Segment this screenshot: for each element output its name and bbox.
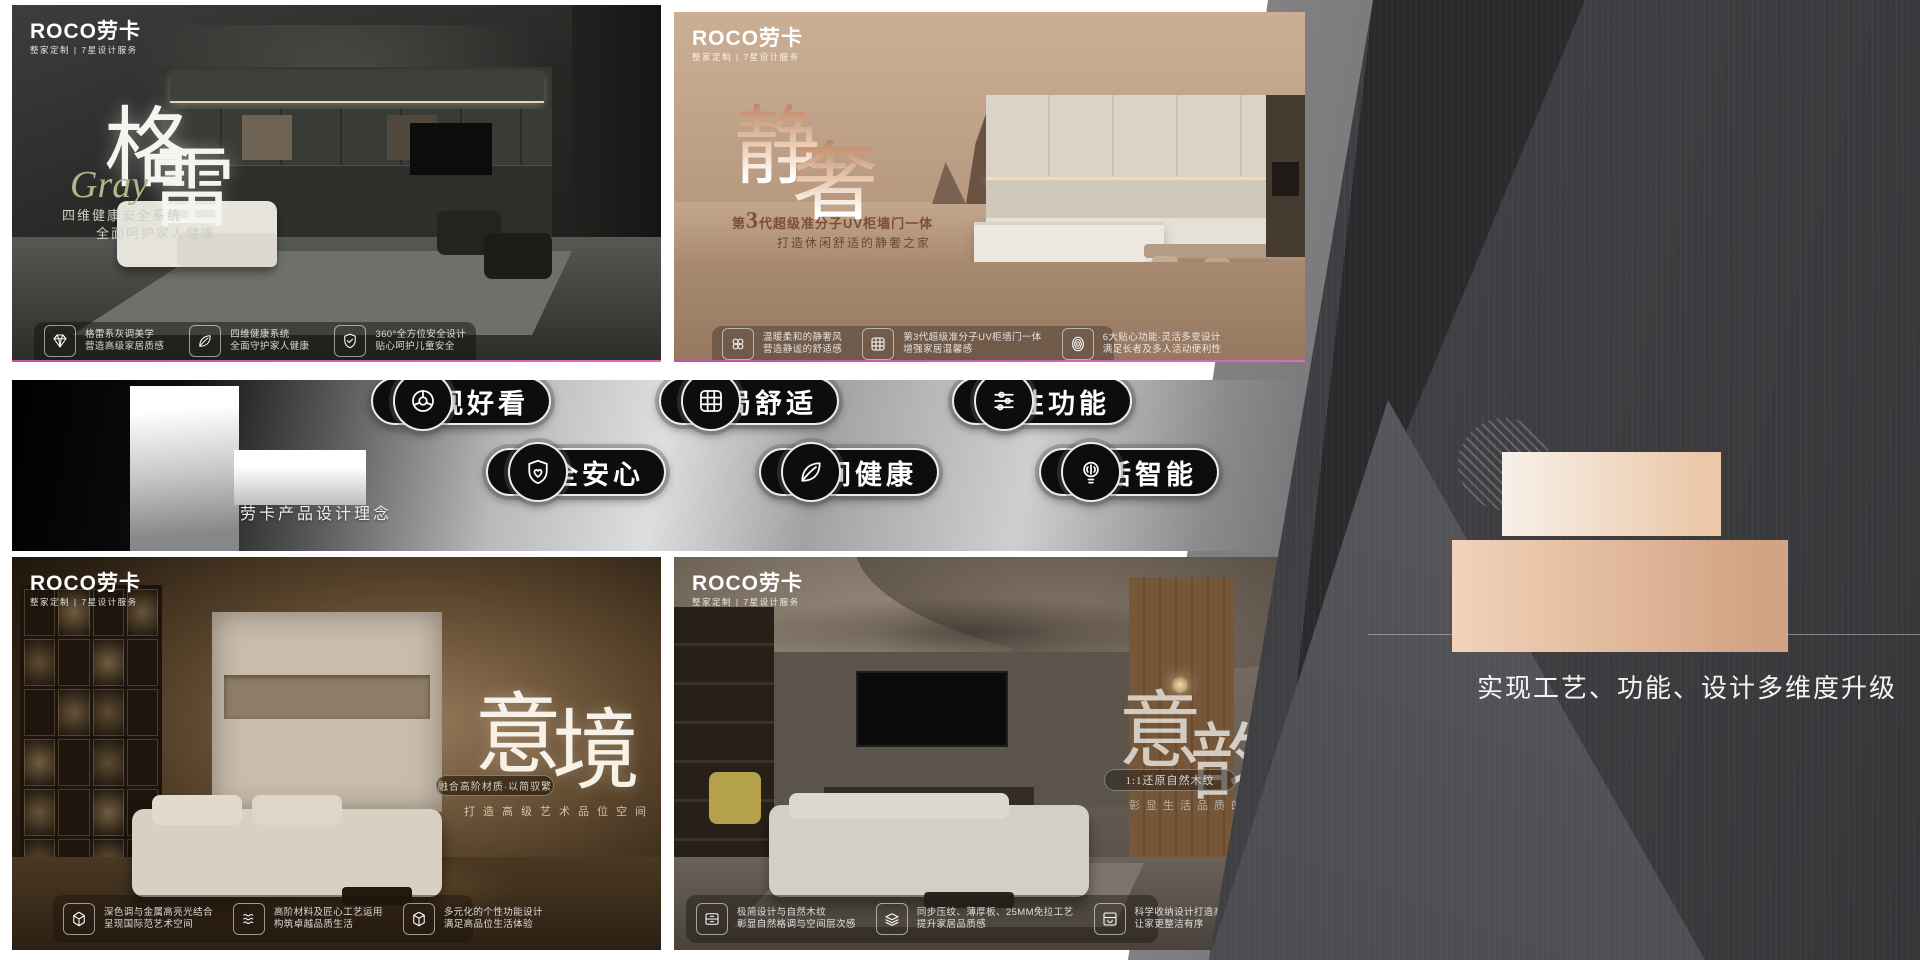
roco-logo: ROCO劳卡 整家定制 | 7星设计服务 — [30, 573, 141, 607]
scene-backsplash — [986, 180, 1305, 218]
feature-line2: 满足长者及多人活动便利性 — [1103, 344, 1222, 357]
feature-line1: 同步压纹、薄厚板、25MM免拉工艺 — [917, 907, 1074, 920]
feature-text: 温暖柔和的静奢风 营造静谧的舒适感 — [763, 332, 842, 357]
gray-subtitle-1: 四维健康安全系统 — [62, 205, 182, 224]
feature-icon-box — [403, 903, 435, 935]
feature-line2: 营造高级家居质感 — [85, 341, 164, 354]
feature-item: 高阶材料及匠心工艺运用 构筑卓越品质生活 — [223, 903, 393, 935]
sliders-icon — [989, 386, 1019, 416]
panel-headline-series: 4大系列 — [1502, 452, 1721, 536]
feature-text: 极简设计与自然木纹 彰显自然格调与空间层次感 — [737, 907, 856, 932]
roco-logo-tagline: 整家定制 | 7星设计服务 — [692, 598, 803, 607]
scene-tv — [856, 671, 1008, 747]
subtitle-prefix: 第 — [732, 213, 745, 232]
feature-line1: 极简设计与自然木纹 — [737, 907, 856, 920]
feature-item: 6大贴心功能·灵活多变设计 满足长者及多人活动便利性 — [1052, 328, 1232, 360]
scene-sofa-cushion-1 — [152, 795, 242, 825]
shelf-cell — [58, 639, 89, 686]
feature-text: 深色调与金属高亮光结合 呈现国际范艺术空间 — [104, 907, 213, 932]
feature-line2: 提升家居品质感 — [917, 919, 1074, 932]
poster-gray-series: ROCO劳卡 整家定制 | 7星设计服务 格 雷 Gray 四维健康安全系统 全… — [12, 5, 661, 362]
aperture-icon — [408, 386, 438, 416]
standards-caption: 劳卡产品设计理念 — [240, 500, 392, 524]
feature-line2: 贴心呵护儿童安全 — [375, 341, 466, 354]
standards-heading: 大标准 — [234, 450, 366, 505]
feature-icon-box — [334, 325, 366, 357]
yijing-badge: 融合高阶材质·以简驭繁 — [436, 775, 554, 796]
feature-item: 极简设计与自然木纹 彰显自然格调与空间层次感 — [686, 903, 866, 935]
cabinet-grid-icon — [869, 335, 887, 353]
roco-logo-text: ROCO劳卡 — [692, 28, 803, 49]
poster-jingshe-series: ROCO劳卡 整家定制 | 7星设计服务 静 奢 第 3 代超级准分子UV柜墙门… — [674, 12, 1305, 362]
shelf-cell-lit — [24, 789, 55, 836]
leaf-icon — [796, 457, 826, 487]
feature-line1: 深色调与金属高亮光结合 — [104, 907, 213, 920]
feature-text: 360°全方位安全设计 贴心呵护儿童安全 — [375, 329, 466, 354]
scene-upper-cabinets — [986, 95, 1305, 179]
roco-logo: ROCO劳卡 整家定制 | 7星设计服务 — [692, 28, 803, 62]
promo-sheet: ROCO劳卡 整家定制 | 7星设计服务 格 雷 Gray 四维健康安全系统 全… — [0, 0, 1920, 960]
feature-line2: 呈现国际范艺术空间 — [104, 919, 213, 932]
feature-icon-box — [189, 325, 221, 357]
waves-icon — [240, 910, 258, 928]
feature-item: 360°全方位安全设计 贴心呵护儿童安全 — [324, 325, 476, 357]
layers-icon — [883, 910, 901, 928]
feature-line1: 四维健康系统 — [230, 329, 309, 342]
shelf-cell-lit — [93, 689, 124, 736]
roco-logo-text: ROCO劳卡 — [30, 21, 141, 42]
shelf-cell — [24, 689, 55, 736]
yijing-title-char2: 境 — [552, 709, 640, 797]
roco-logo-tagline: 整家定制 | 7星设计服务 — [30, 46, 141, 55]
scene-art-panel-1 — [242, 115, 292, 160]
feature-icon-box — [233, 903, 265, 935]
leaf-icon — [196, 332, 214, 350]
scene-bookshelf — [674, 607, 774, 867]
yiyun-badge: 1:1还原自然木纹 — [1104, 769, 1236, 791]
shelf-cell-lit — [58, 689, 89, 736]
magenta-accent-line — [12, 360, 661, 362]
badge-icon-circle — [1061, 442, 1121, 502]
grid-icon — [696, 386, 726, 416]
feature-line2: 增强家居温馨感 — [903, 344, 1041, 357]
scene-tv — [410, 123, 492, 175]
panel-headline-launch: 新品上市 — [1452, 540, 1788, 652]
feature-item: 同步压纹、薄厚板、25MM免拉工艺 提升家居品质感 — [866, 903, 1084, 935]
yiyun-feature-bar: 极简设计与自然木纹 彰显自然格调与空间层次感 同步压纹、薄厚板、25MM免拉工艺… — [686, 895, 1158, 943]
scene-rock-small — [932, 162, 966, 204]
roco-logo-tagline: 整家定制 | 7星设计服务 — [692, 53, 803, 62]
shield-heart-icon — [523, 457, 553, 487]
feature-text: 高阶材料及匠心工艺运用 构筑卓越品质生活 — [274, 907, 383, 932]
shelf-cell-lit — [93, 639, 124, 686]
feature-text: 第3代超级准分子UV柜墙门一体 增强家居温馨感 — [903, 332, 1041, 357]
feature-line1: 温暖柔和的静奢风 — [763, 332, 842, 345]
gray-feature-bar: 格雷系灰调美学 营造高级家居质感 四维健康系统 全面守护家人健康 360°全方位… — [34, 322, 476, 360]
gray-title-script: Gray — [70, 163, 148, 207]
poster-yiyun-series: ROCO劳卡 整家定制 | 7星设计服务 意 韵 1:1还原自然木纹 彰显生活品… — [674, 557, 1305, 950]
subtitle-rest: 代超级准分子UV柜墙门一体 — [759, 213, 933, 232]
subtitle-number: 3 — [746, 208, 758, 235]
yijing-subtitle: 打造高级艺术品位空间 — [464, 803, 654, 819]
feature-icon-box — [696, 903, 728, 935]
jingshe-feature-bar: 温暖柔和的静奢风 营造静谧的舒适感 第3代超级准分子UV柜墙门一体 增强家居温馨… — [712, 326, 1114, 362]
feature-text: 同步压纹、薄厚板、25MM免拉工艺 提升家居品质感 — [917, 907, 1074, 932]
magenta-accent-line — [674, 360, 1305, 362]
feature-item: 第3代超级准分子UV柜墙门一体 增强家居温馨感 — [852, 328, 1051, 360]
badge-icon-circle — [781, 442, 841, 502]
diamond-icon — [51, 332, 69, 350]
yijing-feature-bar: 深色调与金属高亮光结合 呈现国际范艺术空间 高阶材料及匠心工艺运用 构筑卓越品质… — [53, 895, 473, 943]
shelf-cell — [127, 739, 158, 786]
feature-icon-box — [44, 325, 76, 357]
feature-icon-box — [862, 328, 894, 360]
panel-caption: 实现工艺、功能、设计多维度升级 — [1477, 668, 1897, 705]
gem-icon — [70, 910, 88, 928]
feature-line1: 6大贴心功能·灵活多变设计 — [1103, 332, 1222, 345]
feature-line2: 构筑卓越品质生活 — [274, 919, 383, 932]
cube-icon — [410, 910, 428, 928]
standards-number: 6 — [130, 386, 239, 551]
drawer-icon — [703, 910, 721, 928]
storage-icon — [1101, 910, 1119, 928]
feature-icon-box — [722, 328, 754, 360]
jingshe-subtitle-1: 第 3 代超级准分子UV柜墙门一体 — [732, 208, 933, 234]
yijing-title-char1: 意 — [474, 693, 562, 781]
roco-logo-tagline: 整家定制 | 7星设计服务 — [30, 598, 141, 607]
poster-yijing-series: ROCO劳卡 整家定制 | 7星设计服务 意 境 融合高阶材质·以简驭繁 打造高… — [12, 557, 661, 950]
badge-icon-circle — [508, 442, 568, 502]
roco-logo: ROCO劳卡 整家定制 | 7星设计服务 — [30, 21, 141, 55]
feature-line2: 营造静谧的舒适感 — [763, 344, 842, 357]
six-standards-band: 6 大标准 劳卡产品设计理念 外观好看 布局舒适 个性功能 安全安心 空间健康 … — [12, 380, 1305, 551]
scene-wardrobe-right — [572, 5, 661, 255]
feature-line2: 全面守护家人健康 — [230, 341, 309, 354]
jingshe-subtitle-2: 打造休闲舒适的静奢之家 — [777, 234, 931, 251]
feature-icon-box — [1062, 328, 1094, 360]
shelf-cell — [127, 689, 158, 736]
roco-logo: ROCO劳卡 整家定制 | 7星设计服务 — [692, 573, 803, 607]
shield-check-icon — [341, 332, 359, 350]
roco-logo-text: ROCO劳卡 — [30, 573, 141, 594]
shelf-cell — [58, 739, 89, 786]
feature-text: 多元化的个性功能设计 满足高品位生活体验 — [444, 907, 543, 932]
shelf-cell-lit — [24, 639, 55, 686]
scene-accent-chair — [709, 772, 761, 824]
feature-text: 格雷系灰调美学 营造高级家居质感 — [85, 329, 164, 354]
shelf-cell-lit — [24, 739, 55, 786]
feature-item: 多元化的个性功能设计 满足高品位生活体验 — [393, 903, 553, 935]
clover-icon — [729, 335, 747, 353]
feature-line1: 高阶材料及匠心工艺运用 — [274, 907, 383, 920]
shelf-cell-lit — [93, 739, 124, 786]
feature-line1: 第3代超级准分子UV柜墙门一体 — [903, 332, 1041, 345]
scene-sofa-cushion-2 — [252, 795, 342, 825]
feature-line1: 360°全方位安全设计 — [375, 329, 466, 342]
fingerprint-icon — [1069, 335, 1087, 353]
feature-icon-box — [1094, 903, 1126, 935]
scene-wall-niche — [224, 675, 430, 719]
scene-lit-niche — [170, 71, 544, 103]
shelf-cell — [58, 789, 89, 836]
feature-text: 四维健康系统 全面守护家人健康 — [230, 329, 309, 354]
scene-oven — [1272, 162, 1299, 196]
scene-sofa-cushions — [789, 793, 1009, 819]
shelf-cell-lit — [93, 789, 124, 836]
feature-line1: 多元化的个性功能设计 — [444, 907, 543, 920]
feature-text: 6大贴心功能·灵活多变设计 满足长者及多人活动便利性 — [1103, 332, 1222, 357]
feature-item: 温暖柔和的静奢风 营造静谧的舒适感 — [712, 328, 852, 360]
shelf-cell — [127, 639, 158, 686]
scene-armchair-2 — [484, 233, 552, 279]
feature-item: 深色调与金属高亮光结合 呈现国际范艺术空间 — [53, 903, 223, 935]
roco-logo-text: ROCO劳卡 — [692, 573, 803, 594]
feature-line1: 格雷系灰调美学 — [85, 329, 164, 342]
feature-item: 格雷系灰调美学 营造高级家居质感 — [34, 325, 179, 357]
feature-line2: 彰显自然格调与空间层次感 — [737, 919, 856, 932]
feature-line2: 满足高品位生活体验 — [444, 919, 543, 932]
feature-icon-box — [63, 903, 95, 935]
feature-icon-box — [876, 903, 908, 935]
gray-subtitle-2: 全面呵护家人健康 — [96, 223, 216, 242]
feature-item: 四维健康系统 全面守护家人健康 — [179, 325, 324, 357]
smart-bulb-icon — [1076, 457, 1106, 487]
